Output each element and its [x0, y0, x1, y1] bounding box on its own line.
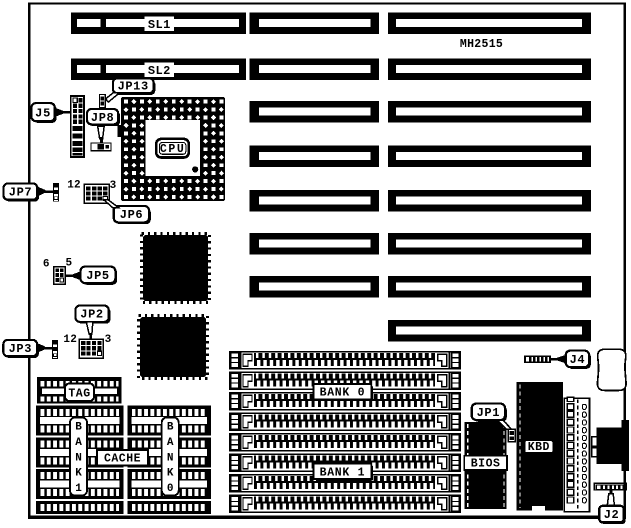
svg-text:J2: J2 [604, 508, 620, 522]
svg-text:JP6: JP6 [120, 208, 143, 222]
svg-text:K: K [167, 468, 174, 480]
svg-text:JP2: JP2 [80, 308, 103, 322]
svg-text:JP3: JP3 [9, 342, 32, 356]
svg-text:3: 3 [105, 334, 112, 346]
svg-text:SL1: SL1 [148, 18, 171, 32]
svg-text:N: N [167, 452, 174, 464]
svg-text:CACHE: CACHE [104, 453, 141, 466]
svg-text:JP8: JP8 [91, 111, 114, 125]
svg-text:JP7: JP7 [9, 186, 32, 200]
svg-text:N: N [75, 452, 82, 464]
svg-text:A: A [75, 437, 82, 449]
svg-text:12: 12 [63, 334, 77, 346]
svg-text:CPU: CPU [160, 143, 186, 156]
svg-text:KBD: KBD [528, 441, 550, 454]
svg-text:12: 12 [67, 180, 81, 192]
svg-text:BANK 1: BANK 1 [320, 466, 366, 479]
svg-text:BANK 0: BANK 0 [320, 387, 366, 400]
svg-text:5: 5 [66, 257, 73, 269]
svg-text:TAG: TAG [68, 388, 90, 401]
svg-text:3: 3 [110, 180, 117, 192]
svg-text:0: 0 [167, 483, 174, 495]
svg-text:J5: J5 [35, 106, 51, 120]
svg-text:6: 6 [43, 258, 50, 270]
svg-text:JP1: JP1 [477, 406, 500, 420]
svg-text:B: B [167, 422, 174, 434]
svg-text:A: A [167, 437, 174, 449]
svg-text:BIOS: BIOS [471, 458, 501, 471]
svg-text:K: K [75, 468, 82, 480]
svg-text:B: B [75, 422, 82, 434]
svg-text:SL2: SL2 [148, 64, 171, 78]
svg-text:JP5: JP5 [86, 269, 109, 283]
svg-text:MH2515: MH2515 [460, 38, 503, 51]
svg-text:J4: J4 [570, 353, 586, 367]
svg-text:JP13: JP13 [118, 80, 149, 94]
svg-text:1: 1 [75, 483, 82, 495]
